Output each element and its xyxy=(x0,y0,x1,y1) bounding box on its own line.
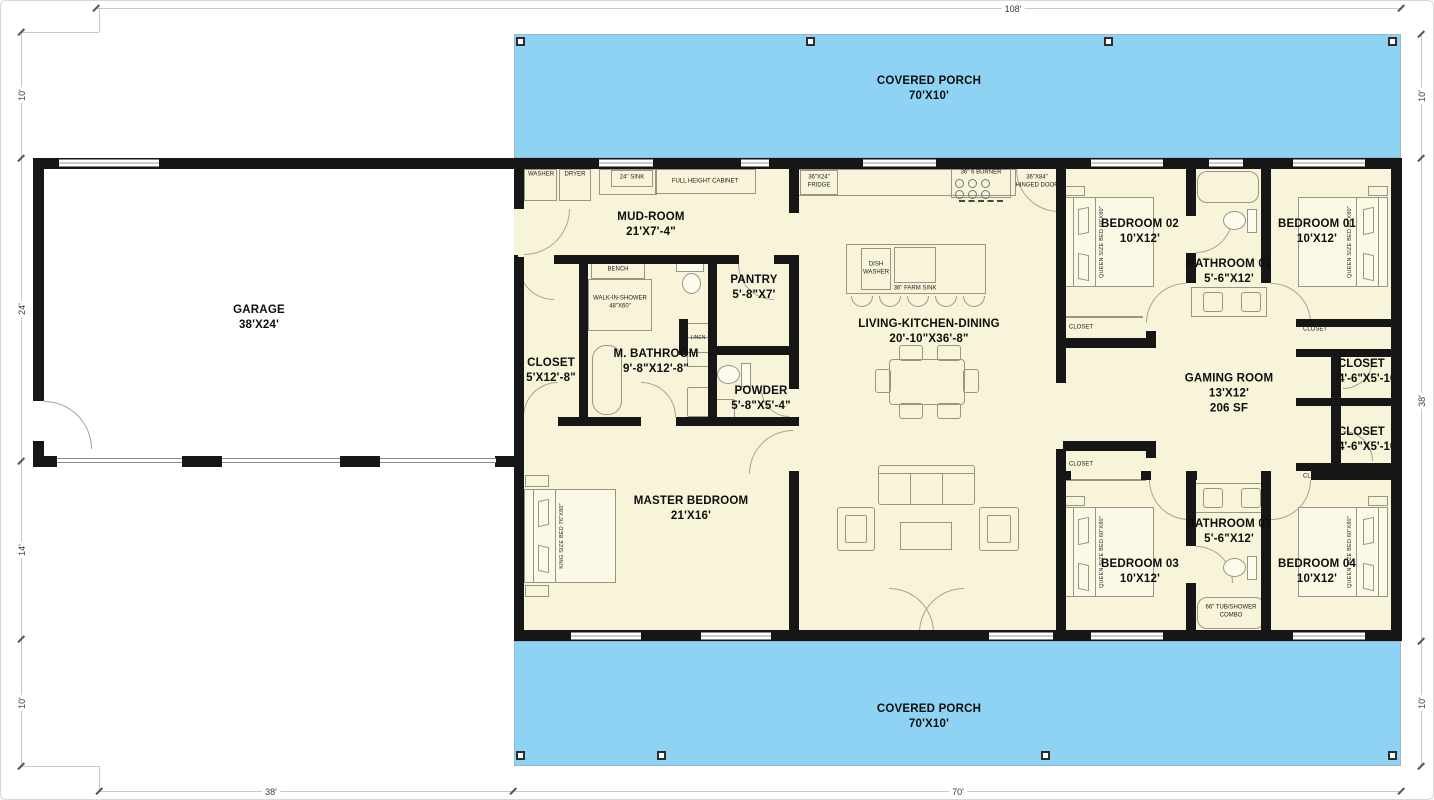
wall xyxy=(1141,471,1151,480)
wall xyxy=(676,417,799,426)
toilet-icon xyxy=(1223,211,1246,230)
nightstand xyxy=(1065,496,1085,506)
bed-pillow xyxy=(1078,563,1089,591)
window xyxy=(1091,632,1163,640)
toilet-icon xyxy=(1247,209,1257,233)
garage-door xyxy=(222,458,340,463)
hinged-door-label: 36"X84"HINGED DOOR xyxy=(1015,175,1058,190)
bed-fold-line xyxy=(1356,198,1357,286)
coffee-table xyxy=(900,522,952,550)
room-label-porch-bottom: COVERED PORCH70'X10' xyxy=(877,702,981,732)
burner-dashes xyxy=(959,200,1003,202)
room-label-pantry: PANTRY5'-8"X7' xyxy=(730,273,777,303)
dim-right-10a: 10' xyxy=(1417,88,1427,104)
wall xyxy=(1261,471,1271,631)
bed-fold-line xyxy=(1095,198,1096,286)
window xyxy=(59,159,159,167)
wall xyxy=(1063,441,1148,451)
burner-icon xyxy=(981,190,990,199)
dryer-label: DRYER xyxy=(565,171,586,179)
dining-chair xyxy=(875,369,891,393)
wall xyxy=(789,471,799,641)
bed-size-label: KING SIZE BED 76"X80" xyxy=(559,503,565,569)
dim-left-10a: 10' xyxy=(17,87,27,103)
wall xyxy=(495,456,514,467)
wall xyxy=(514,417,523,426)
wall xyxy=(1331,349,1341,479)
farm-sink-label: 36" FARM SINK xyxy=(894,285,937,293)
toilet-icon xyxy=(676,263,704,272)
room-label-mudroom: MUD-ROOM21'X7'-4" xyxy=(617,210,684,240)
wall xyxy=(1063,338,1148,348)
wall xyxy=(1296,349,1401,357)
dim-top: 108' xyxy=(1002,4,1025,14)
porch-post xyxy=(516,751,525,760)
bed-headboard xyxy=(1378,507,1388,597)
wall xyxy=(1146,331,1156,348)
wall xyxy=(1056,471,1071,480)
toilet-icon xyxy=(717,365,740,384)
closet-small-label: CLOSET xyxy=(1303,473,1327,481)
porch-post xyxy=(657,751,666,760)
dim-right-10b: 10' xyxy=(1417,695,1427,711)
linen-label: LINEN xyxy=(691,335,706,341)
nightstand xyxy=(525,475,549,487)
window xyxy=(1209,159,1243,167)
wall xyxy=(514,257,524,641)
window xyxy=(701,632,771,640)
window xyxy=(863,159,936,167)
farm-sink xyxy=(894,247,936,283)
window xyxy=(1293,632,1365,640)
wall xyxy=(514,630,1401,641)
room-label-bedroom3: BEDROOM 0310'X12' xyxy=(1101,557,1179,587)
burner-icon xyxy=(955,179,964,188)
nightstand xyxy=(525,585,549,597)
dim-connector xyxy=(99,9,100,32)
vanity-sink xyxy=(1241,292,1261,312)
furniture-line xyxy=(1066,479,1146,481)
dim-line-bottom xyxy=(99,791,1401,792)
room-label-master-bedroom: MASTER BEDROOM21'X16' xyxy=(634,494,749,524)
bed-pillow xyxy=(1363,517,1374,545)
window xyxy=(1293,159,1365,167)
window xyxy=(599,159,653,167)
nightstand xyxy=(1368,186,1388,196)
garage-door xyxy=(57,458,182,463)
wall xyxy=(558,417,641,426)
tub-shower-combo-label: 66" TUB/SHOWERCOMBO xyxy=(1205,605,1256,620)
dim-connector xyxy=(21,32,99,33)
armchair-seat xyxy=(987,515,1011,543)
toilet-icon xyxy=(682,273,701,294)
dim-tick xyxy=(1397,4,1404,11)
vanity-sink xyxy=(1203,488,1223,508)
furniture-line xyxy=(910,473,911,504)
bed-pillow xyxy=(538,545,549,573)
wall xyxy=(1186,158,1196,216)
bed-pillow xyxy=(1078,207,1089,235)
bed-fold-line xyxy=(1095,508,1096,596)
dim-tick xyxy=(1397,787,1404,794)
furniture-line xyxy=(942,473,943,504)
sofa xyxy=(878,465,975,505)
bed: KING SIZE BED 76"X80" xyxy=(524,489,616,583)
room-label-garage: GARAGE38'X24' xyxy=(233,303,285,333)
wall xyxy=(514,255,518,264)
dim-line-left xyxy=(21,32,22,766)
wall xyxy=(1296,463,1401,471)
room-label-master-bath: M. BATHROOM9'-8"X12'-8" xyxy=(613,347,698,377)
window xyxy=(989,632,1053,640)
armchair-seat xyxy=(845,515,867,543)
porch-post xyxy=(1041,751,1050,760)
burner-label: 36" 6 BURNER xyxy=(961,169,1002,177)
wall xyxy=(708,255,717,417)
wall xyxy=(182,456,222,467)
closet-small-label: CLOSET xyxy=(1069,324,1093,332)
room-label-closet-lower: CLOSET4'-6"X5'-10" xyxy=(1338,425,1391,455)
wall xyxy=(33,158,44,401)
dim-tick xyxy=(1417,762,1424,769)
cabinet-label: FULL HEIGHT CABINET xyxy=(672,178,738,186)
dim-left-24: 24' xyxy=(17,301,27,317)
room-label-powder: POWDER5'-8"X5'-4" xyxy=(731,384,791,414)
dining-chair xyxy=(937,403,961,419)
porch-post xyxy=(1104,37,1113,46)
window xyxy=(1091,159,1163,167)
room-label-bedroom4: BEDROOM 0410'X12' xyxy=(1278,557,1356,587)
porch-post xyxy=(516,37,525,46)
closet-small-label: CLOSET xyxy=(1069,461,1093,469)
wall xyxy=(1296,398,1401,406)
room-label-master-closet: CLOSET5'X12'-8" xyxy=(526,356,576,386)
burner-icon xyxy=(968,190,977,199)
wall xyxy=(1146,441,1156,458)
dim-line-top xyxy=(96,8,1401,9)
bed-fold-line xyxy=(555,490,556,582)
bathtub xyxy=(1197,171,1259,203)
room-label-bedroom1: BEDROOM 0110'X12' xyxy=(1278,217,1356,247)
porch-post xyxy=(1388,751,1397,760)
garage-door xyxy=(380,458,496,463)
closet-small-label: CLOSET xyxy=(1303,326,1327,334)
wall xyxy=(340,456,380,467)
dim-right-38: 38' xyxy=(1417,393,1427,409)
vanity-sink xyxy=(1203,292,1223,312)
wall xyxy=(1186,583,1196,631)
dim-left-14: 14' xyxy=(17,542,27,558)
dining-table xyxy=(889,359,965,405)
wall xyxy=(1056,158,1066,383)
bed-headboard xyxy=(524,489,534,583)
dining-chair xyxy=(899,403,923,419)
dining-chair xyxy=(937,345,961,361)
dim-left-10b: 10' xyxy=(17,695,27,711)
room-label-porch-top: COVERED PORCH70'X10' xyxy=(877,74,981,104)
bed-pillow xyxy=(1078,517,1089,545)
toilet-icon xyxy=(1223,558,1246,577)
bed-pillow xyxy=(1078,253,1089,281)
wall xyxy=(789,158,799,213)
wall xyxy=(774,255,799,264)
burner-icon xyxy=(968,179,977,188)
toilet-icon xyxy=(1247,556,1257,580)
dining-chair xyxy=(963,369,979,393)
dishwasher-label: DISHWASHER xyxy=(863,262,889,277)
furniture-line xyxy=(878,473,975,474)
wall xyxy=(708,346,799,355)
walk-in-shower-label: WALK-IN-SHOWER48"X60" xyxy=(593,296,647,311)
bed-pillow xyxy=(1363,253,1374,281)
bed-pillow xyxy=(1363,207,1374,235)
wall xyxy=(33,456,57,467)
sink24-label: 24" SINK xyxy=(620,174,644,182)
porch-post xyxy=(806,37,815,46)
room-label-bath2: BATHROOM 025'-6"X12' xyxy=(1186,517,1271,547)
washer-label: WASHER xyxy=(528,171,554,179)
room-label-closet-upper: CLOSET4'-6"X5'-10" xyxy=(1338,357,1391,387)
fridge-label: 36"X24"FRIDGE xyxy=(808,175,831,190)
dim-bottom-70: 70' xyxy=(949,787,967,797)
room-label-bedroom2: BEDROOM 0210'X12' xyxy=(1101,217,1179,247)
window xyxy=(741,159,769,167)
wall xyxy=(514,158,524,209)
room-label-gaming: GAMING ROOM13'X12'206 SF xyxy=(1185,372,1273,417)
burner-icon xyxy=(981,179,990,188)
bed-pillow xyxy=(1363,563,1374,591)
dim-connector xyxy=(21,766,100,767)
dining-chair xyxy=(899,345,923,361)
floor-plan-canvas: GARAGE38'X24' COVERED PORCH70'X10' COVER… xyxy=(0,0,1434,800)
window xyxy=(571,632,641,640)
bench-label: BENCH xyxy=(607,266,628,274)
porch-post xyxy=(1388,37,1397,46)
nightstand xyxy=(1065,186,1085,196)
bed-fold-line xyxy=(1356,508,1357,596)
dim-bottom-38: 38' xyxy=(262,787,280,797)
furniture-line xyxy=(1063,316,1143,318)
room-label-bath1: BATHROOM 015'-6"X12' xyxy=(1186,257,1271,287)
bed-pillow xyxy=(538,499,549,527)
wall xyxy=(789,255,799,389)
vanity-sink xyxy=(1241,488,1261,508)
wall xyxy=(579,255,588,417)
bed-headboard xyxy=(1378,197,1388,287)
nightstand xyxy=(1368,496,1388,506)
burner-icon xyxy=(955,190,964,199)
room-label-living: LIVING-KITCHEN-DINING20'-10"X36'-8" xyxy=(858,317,1000,347)
